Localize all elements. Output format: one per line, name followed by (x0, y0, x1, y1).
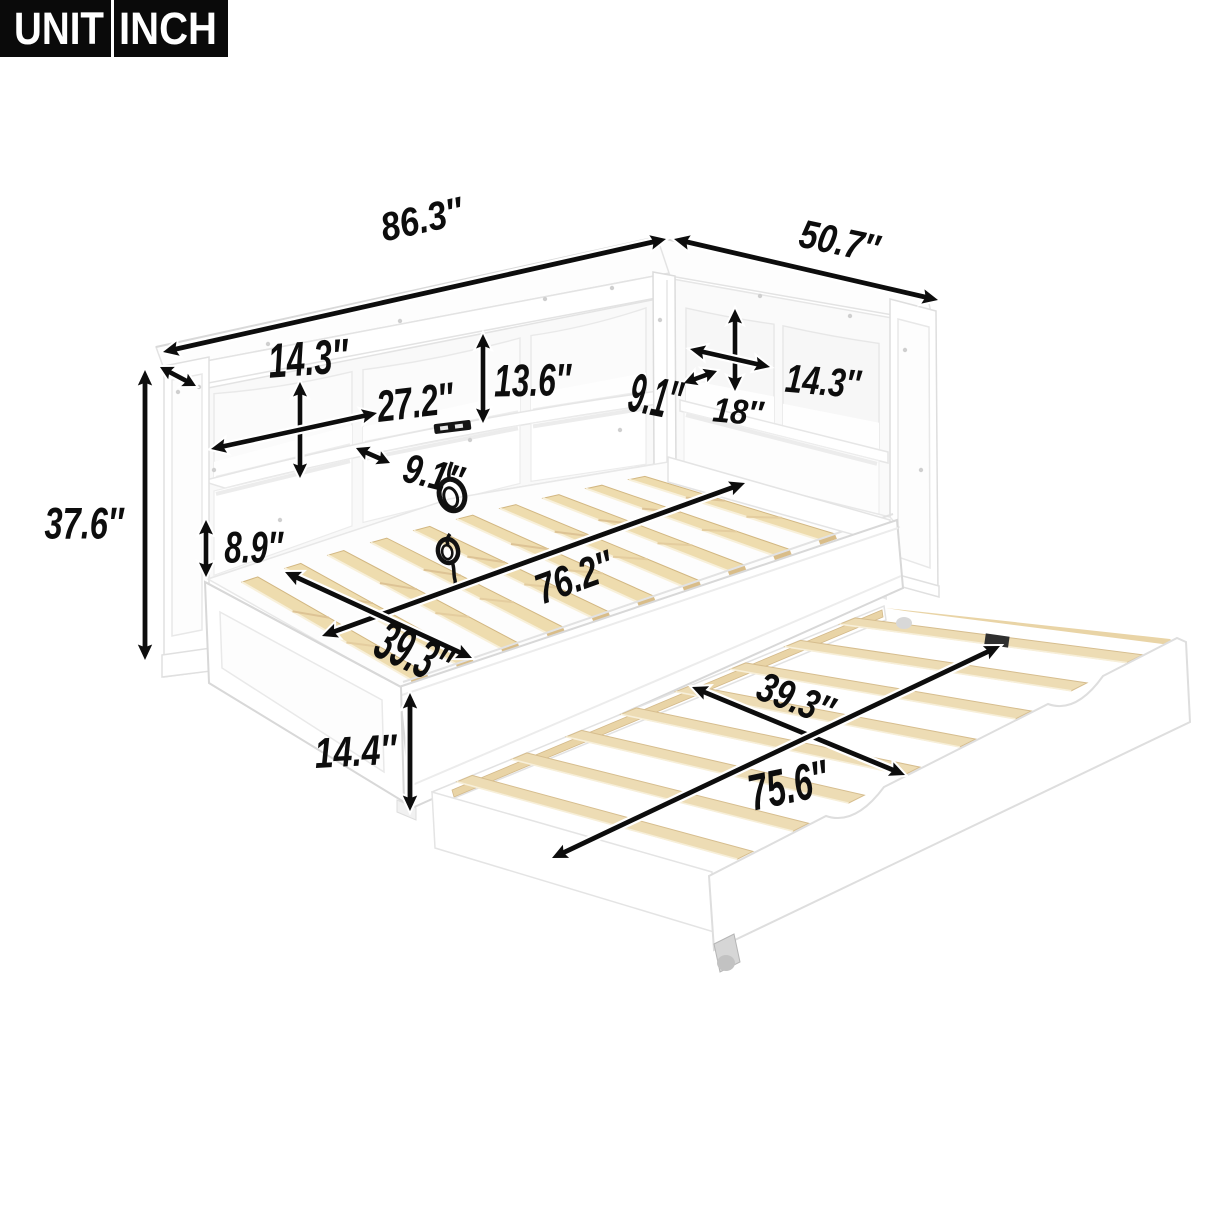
svg-text:13.6″: 13.6″ (494, 354, 573, 406)
svg-text:27.2″: 27.2″ (373, 374, 457, 432)
svg-text:14.4″: 14.4″ (313, 726, 399, 778)
svg-text:14.3″: 14.3″ (784, 357, 864, 408)
svg-text:18″: 18″ (711, 391, 766, 433)
svg-text:37.6″: 37.6″ (44, 499, 124, 548)
svg-text:UNIT: UNIT (14, 3, 104, 54)
svg-text:INCH: INCH (119, 3, 217, 54)
svg-text:8.9″: 8.9″ (224, 523, 284, 572)
svg-text:14.3″: 14.3″ (266, 329, 351, 389)
